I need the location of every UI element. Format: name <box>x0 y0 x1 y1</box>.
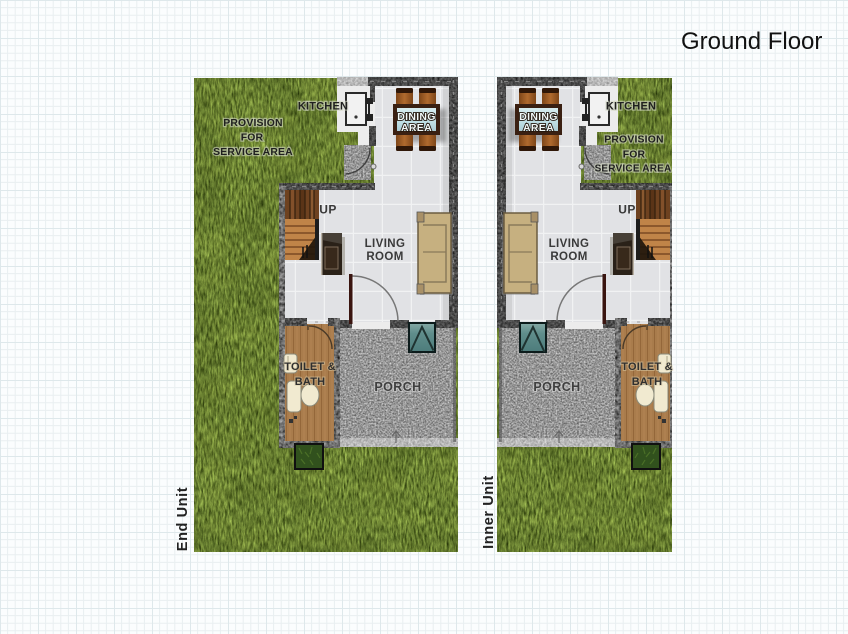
svg-text:UP: UP <box>319 203 336 217</box>
svg-text:PROVISION: PROVISION <box>604 135 664 146</box>
svg-text:AREA: AREA <box>523 122 554 134</box>
svg-text:AREA: AREA <box>401 122 432 134</box>
svg-text:PORCH: PORCH <box>374 380 421 394</box>
svg-text:End Unit: End Unit <box>175 487 191 551</box>
svg-text:Inner Unit: Inner Unit <box>481 475 497 549</box>
svg-text:SERVICE AREA: SERVICE AREA <box>595 164 672 175</box>
svg-text:BATH: BATH <box>295 376 326 388</box>
svg-text:TOILET &: TOILET & <box>621 361 673 373</box>
svg-text:FOR: FOR <box>623 150 646 161</box>
svg-text:Ground Floor: Ground Floor <box>681 28 822 55</box>
svg-text:KITCHEN: KITCHEN <box>606 101 656 113</box>
svg-text:BATH: BATH <box>632 376 663 388</box>
svg-text:KITCHEN: KITCHEN <box>298 101 348 113</box>
svg-text:LIVING: LIVING <box>549 238 590 250</box>
svg-text:PORCH: PORCH <box>533 380 580 394</box>
svg-text:LIVING: LIVING <box>365 238 406 250</box>
svg-text:ROOM: ROOM <box>550 251 587 263</box>
svg-text:PROVISION: PROVISION <box>223 118 283 129</box>
svg-text:UP: UP <box>618 203 635 217</box>
svg-text:TOILET &: TOILET & <box>284 361 336 373</box>
svg-text:FOR: FOR <box>241 133 264 144</box>
svg-text:ROOM: ROOM <box>366 251 403 263</box>
svg-text:SERVICE AREA: SERVICE AREA <box>213 147 293 158</box>
